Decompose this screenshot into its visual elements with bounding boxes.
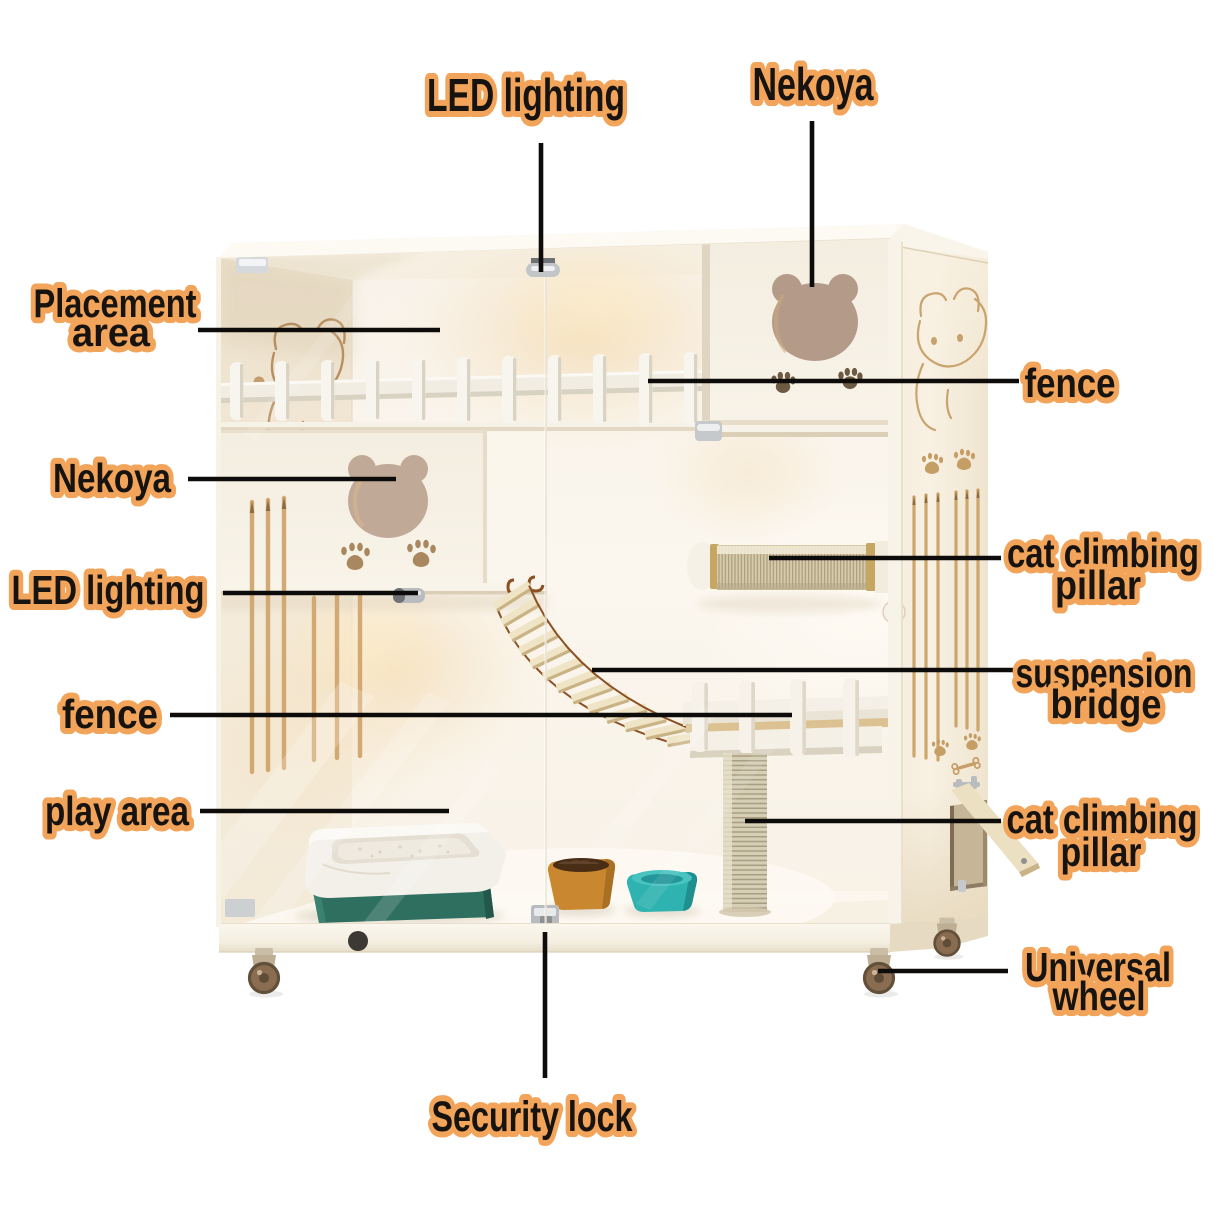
- svg-text:wheel: wheel: [1052, 973, 1146, 1019]
- svg-text:fence: fence: [1025, 360, 1116, 406]
- svg-text:play area: play area: [45, 788, 190, 834]
- svg-text:pillar: pillar: [1061, 829, 1142, 875]
- svg-text:bridge: bridge: [1051, 681, 1162, 727]
- svg-text:pillar: pillar: [1055, 562, 1141, 608]
- svg-text:LED lighting: LED lighting: [427, 69, 625, 121]
- svg-text:LED lighting: LED lighting: [12, 567, 205, 613]
- svg-text:Nekoya: Nekoya: [753, 58, 874, 110]
- svg-text:area: area: [72, 311, 151, 355]
- svg-text:Nekoya: Nekoya: [53, 455, 172, 501]
- svg-text:fence: fence: [62, 691, 158, 737]
- svg-text:Security lock: Security lock: [432, 1093, 633, 1141]
